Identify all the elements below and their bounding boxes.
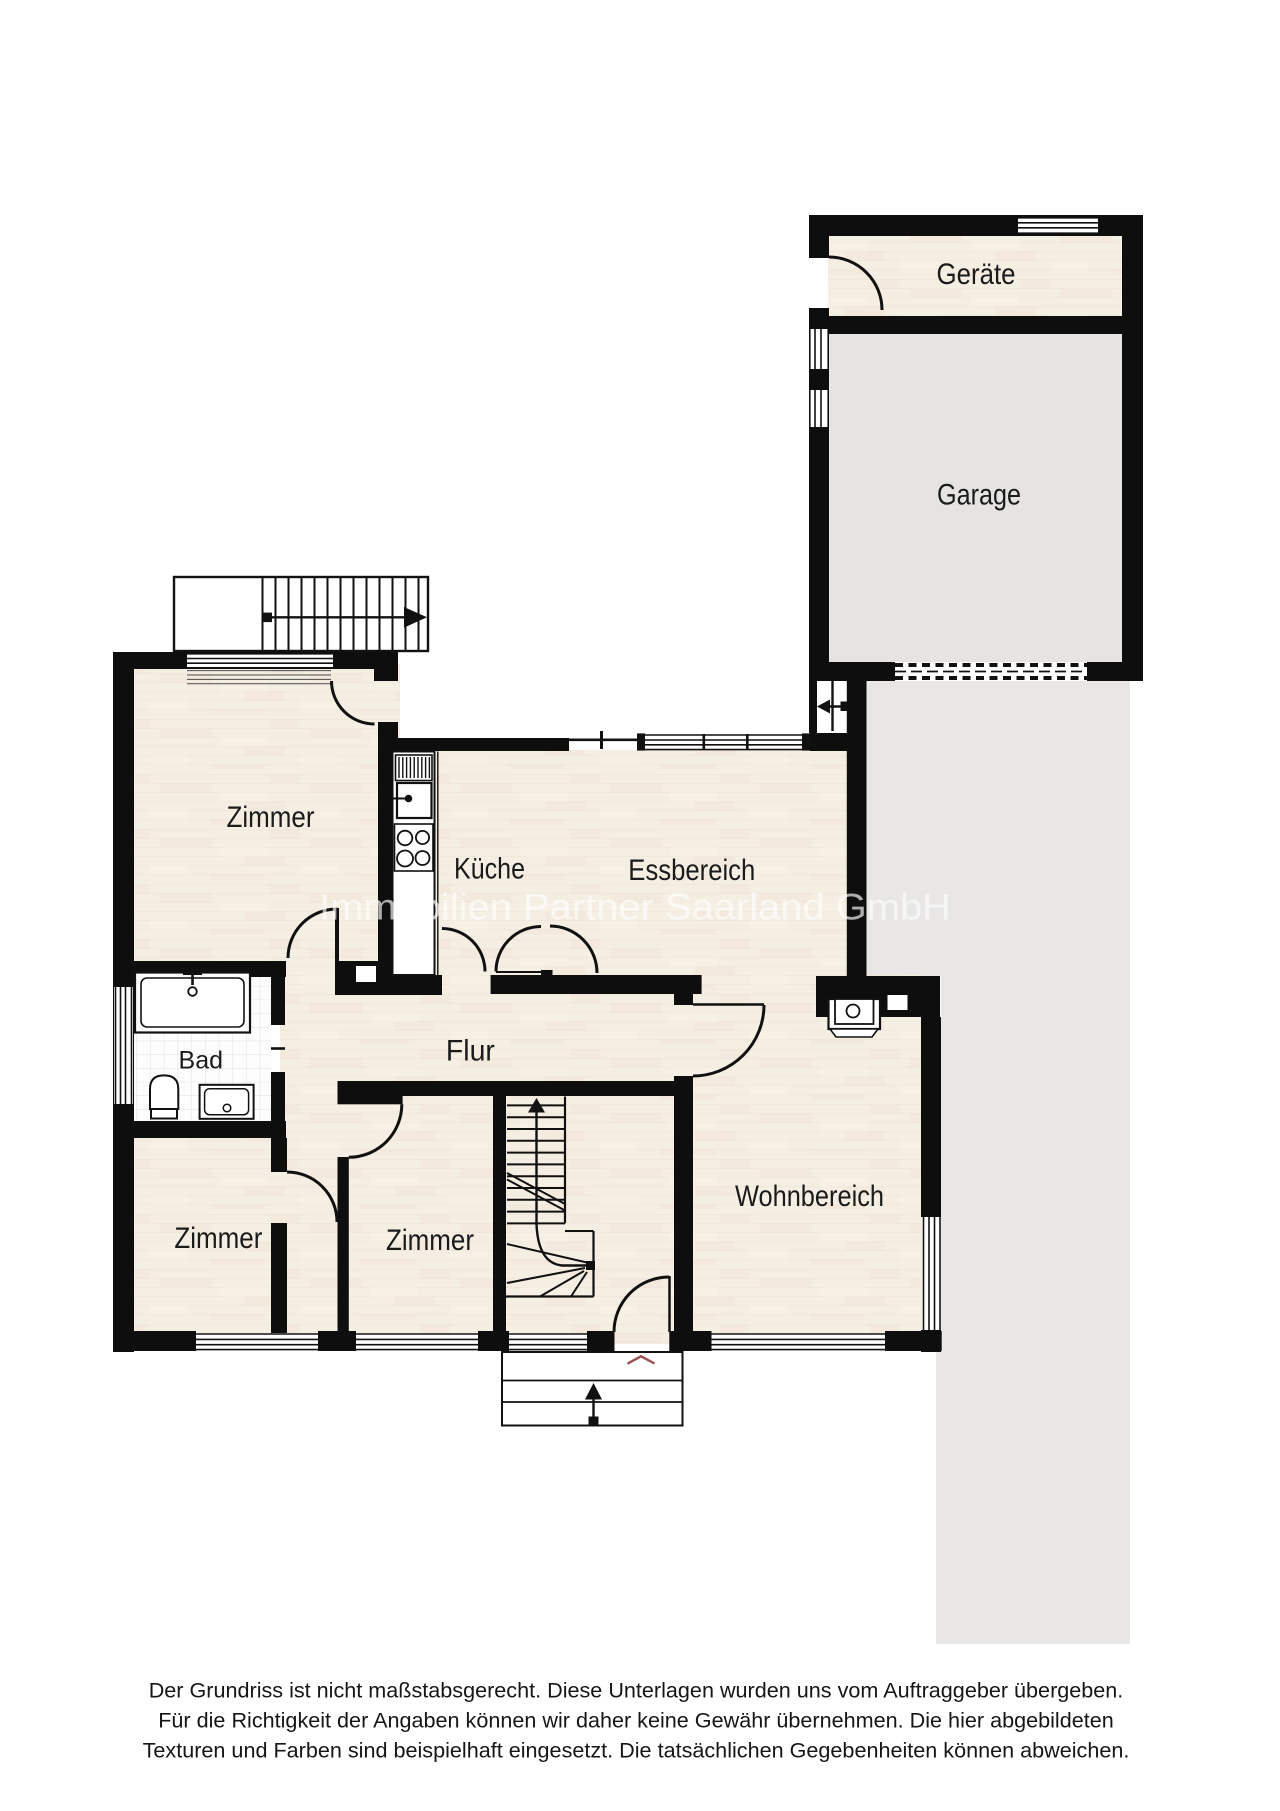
svg-text:Zimmer: Zimmer bbox=[227, 801, 315, 834]
svg-text:Der Grundriss ist nicht maßsta: Der Grundriss ist nicht maßstabsgerecht.… bbox=[149, 1678, 1124, 1703]
svg-text:Küche: Küche bbox=[454, 852, 525, 885]
svg-text:Zimmer: Zimmer bbox=[386, 1224, 474, 1257]
svg-text:Immobilien Partner Saarland Gm: Immobilien Partner Saarland GmbH bbox=[319, 887, 951, 928]
svg-text:Zimmer: Zimmer bbox=[174, 1222, 262, 1255]
svg-text:Für die Richtigkeit der Angabe: Für die Richtigkeit der Angaben können w… bbox=[158, 1708, 1114, 1733]
svg-text:Flur: Flur bbox=[446, 1035, 495, 1068]
svg-text:Wohnbereich: Wohnbereich bbox=[735, 1180, 884, 1213]
svg-text:Bad: Bad bbox=[179, 1046, 224, 1074]
svg-text:Garage: Garage bbox=[937, 479, 1021, 512]
svg-text:Geräte: Geräte bbox=[937, 258, 1016, 291]
svg-text:Essbereich: Essbereich bbox=[628, 854, 755, 887]
svg-text:Texturen und Farben sind beisp: Texturen und Farben sind beispielhaft ei… bbox=[143, 1738, 1130, 1763]
